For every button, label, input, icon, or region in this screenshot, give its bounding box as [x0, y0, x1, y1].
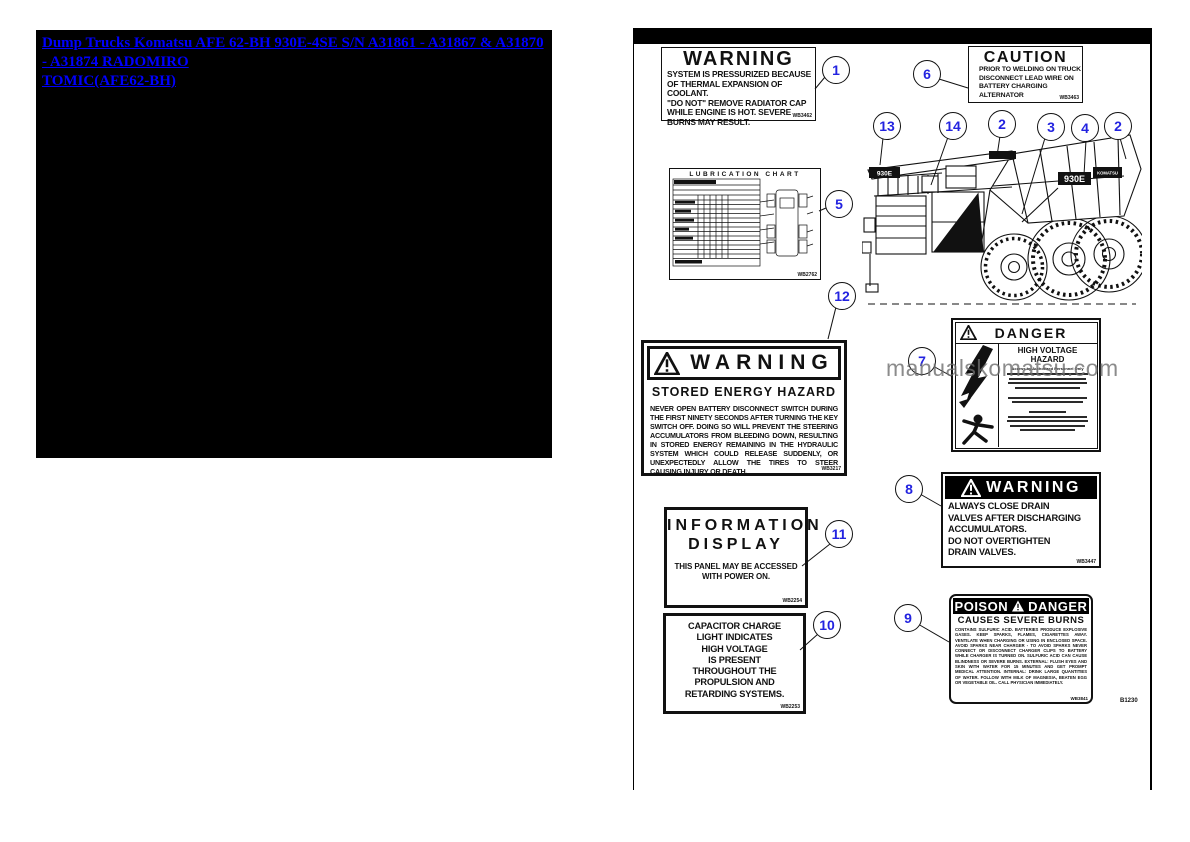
decal-drain-line: ACCUMULATORS. — [948, 524, 1099, 536]
decal-caution-code: WB3463 — [1060, 95, 1079, 101]
truck-front-decal: 930E — [877, 171, 893, 178]
decal-info-title-1: INFORMATION — [667, 516, 805, 535]
decal-poison-code: WB3841 — [1070, 696, 1088, 701]
callout-4[interactable]: 4 — [1071, 114, 1099, 142]
decal-lubrication-chart: LUBRICATION CHART — [669, 168, 821, 280]
callout-11[interactable]: 11 — [825, 520, 853, 548]
danger-triangle-icon — [960, 325, 977, 340]
truck-body-decal: 930E — [1064, 174, 1085, 184]
decal-stored-energy: WARNING STORED ENERGY HAZARD NEVER OPEN … — [641, 340, 847, 476]
decal-poison-header-left: POISON — [955, 599, 1009, 614]
callout-13[interactable]: 13 — [873, 112, 901, 140]
breadcrumb-link[interactable]: Dump Trucks Komatsu AFE 62-BH 930E-4SE S… — [42, 34, 548, 91]
callout-14[interactable]: 14 — [939, 112, 967, 140]
callout-2b-number: 2 — [1114, 118, 1122, 134]
truck-brand-decal: KOMATSU — [1097, 171, 1118, 176]
breadcrumb-link-line1: Dump Trucks Komatsu AFE 62-BH 930E-4SE S… — [42, 34, 548, 72]
decal-caution-title: CAUTION — [969, 49, 1082, 66]
lubrication-chart-drawing — [670, 178, 816, 272]
decal-capacitor-line: CAPACITOR CHARGE — [666, 621, 803, 632]
decal-drain-line: DO NOT OVERTIGHTEN — [948, 536, 1099, 548]
callout-9-number: 9 — [904, 610, 912, 626]
decal-capacitor-code: WB2253 — [781, 704, 800, 710]
callout-3-number: 3 — [1047, 119, 1055, 135]
decal-caution-line: DISCONNECT LEAD WIRE ON — [979, 75, 1082, 84]
callout-8-number: 8 — [905, 481, 913, 497]
decal-capacitor-line: RETARDING SYSTEMS. — [666, 689, 803, 700]
decal-capacitor-line: IS PRESENT — [666, 655, 803, 666]
callout-13-number: 13 — [879, 118, 895, 134]
danger-triangle-icon — [1011, 600, 1025, 612]
callout-6[interactable]: 6 — [913, 60, 941, 88]
decal-info-code: WB2254 — [783, 598, 802, 604]
decal-drain-line: ALWAYS CLOSE DRAIN — [948, 501, 1099, 513]
decal-drain-header: WARNING — [986, 479, 1081, 497]
truck-illustration: 930E 930E KOMATSU — [862, 126, 1142, 311]
decal-caution-welding: CAUTION PRIOR TO WELDING ON TRUCK DISCON… — [968, 46, 1083, 103]
decal-coolant-line: OF THERMAL EXPANSION OF COOLANT. — [667, 80, 815, 99]
callout-5-number: 5 — [835, 196, 843, 212]
callout-3[interactable]: 3 — [1037, 113, 1065, 141]
callout-14-number: 14 — [945, 118, 961, 134]
callout-10-number: 10 — [819, 617, 835, 633]
decal-lube-title: LUBRICATION CHART — [670, 171, 820, 178]
decal-coolant-title: WARNING — [662, 49, 815, 70]
decal-lube-code: WB2762 — [798, 272, 817, 278]
manual-page: 1 6 13 14 2 3 4 2 5 12 7 8 11 10 9 WARNI… — [633, 28, 1152, 790]
decal-coolant-line: BURNS MAY RESULT. — [667, 118, 815, 128]
decal-stored-title: STORED ENERGY HAZARD — [644, 385, 844, 399]
decal-capacitor-charge: CAPACITOR CHARGE LIGHT INDICATES HIGH VO… — [663, 613, 806, 714]
decal-capacitor-line: PROPULSION AND — [666, 677, 803, 688]
decal-capacitor-line: LIGHT INDICATES — [666, 632, 803, 643]
decal-stored-code: WB3217 — [822, 466, 841, 472]
callout-12[interactable]: 12 — [828, 282, 856, 310]
callout-2a[interactable]: 2 — [988, 110, 1016, 138]
decal-hv-header: DANGER — [982, 325, 1081, 341]
callout-1-number: 1 — [832, 62, 840, 78]
callout-6-number: 6 — [923, 66, 931, 82]
callout-4-number: 4 — [1081, 120, 1089, 136]
callout-8[interactable]: 8 — [895, 475, 923, 503]
decal-capacitor-line: HIGH VOLTAGE — [666, 644, 803, 655]
decal-poison-title: CAUSES SEVERE BURNS — [951, 615, 1091, 626]
breadcrumb-link-line2: TOMIC(AFE62-BH) — [42, 72, 548, 91]
callout-12-number: 12 — [834, 288, 850, 304]
decal-coolant-warning: WARNING SYSTEM IS PRESSURIZED BECAUSE OF… — [661, 47, 816, 121]
decal-poison-body: CONTAINS SULFURIC ACID. BATTERIES PRODUC… — [955, 627, 1087, 685]
decal-stored-body: NEVER OPEN BATTERY DISCONNECT SWITCH DUR… — [650, 404, 838, 476]
decal-information-display: INFORMATION DISPLAY THIS PANEL MAY BE AC… — [664, 507, 808, 608]
callout-1[interactable]: 1 — [822, 56, 850, 84]
decal-capacitor-line: THROUGHOUT THE — [666, 666, 803, 677]
callout-9[interactable]: 9 — [894, 604, 922, 632]
decal-drain-line: DRAIN VALVES. — [948, 547, 1099, 559]
callout-11-number: 11 — [832, 526, 847, 542]
decal-poison-danger: POISON DANGER CAUSES SEVERE BURNS CONTAI… — [949, 594, 1093, 704]
link-panel: Dump Trucks Komatsu AFE 62-BH 930E-4SE S… — [36, 30, 552, 458]
callout-10[interactable]: 10 — [813, 611, 841, 639]
decal-info-line: WITH POWER ON. — [667, 572, 805, 582]
page-top-bar — [634, 28, 1150, 44]
decal-stored-header: WARNING — [690, 351, 834, 375]
decal-drain-line: VALVES AFTER DISCHARGING — [948, 513, 1099, 525]
decal-poison-header-right: DANGER — [1028, 599, 1087, 614]
callout-2a-number: 2 — [998, 116, 1006, 132]
watermark: manualskomatsu.com — [886, 355, 1119, 382]
callout-5[interactable]: 5 — [825, 190, 853, 218]
decal-info-title-2: DISPLAY — [667, 535, 805, 554]
warning-triangle-icon — [654, 352, 680, 375]
decal-drain-valves-warning: WARNING ALWAYS CLOSE DRAIN VALVES AFTER … — [941, 472, 1101, 568]
decal-caution-line: PRIOR TO WELDING ON TRUCK — [979, 66, 1082, 75]
decal-info-line: THIS PANEL MAY BE ACCESSED — [667, 562, 805, 572]
warning-triangle-icon — [961, 479, 981, 497]
callout-2b[interactable]: 2 — [1104, 112, 1132, 140]
decal-drain-code: WB3447 — [1077, 559, 1096, 565]
page-code: B1230 — [1120, 698, 1138, 704]
shocked-person-icon — [956, 413, 998, 447]
decal-coolant-code: WB3462 — [793, 113, 812, 119]
decal-high-voltage-danger: DANGER — [951, 318, 1101, 452]
